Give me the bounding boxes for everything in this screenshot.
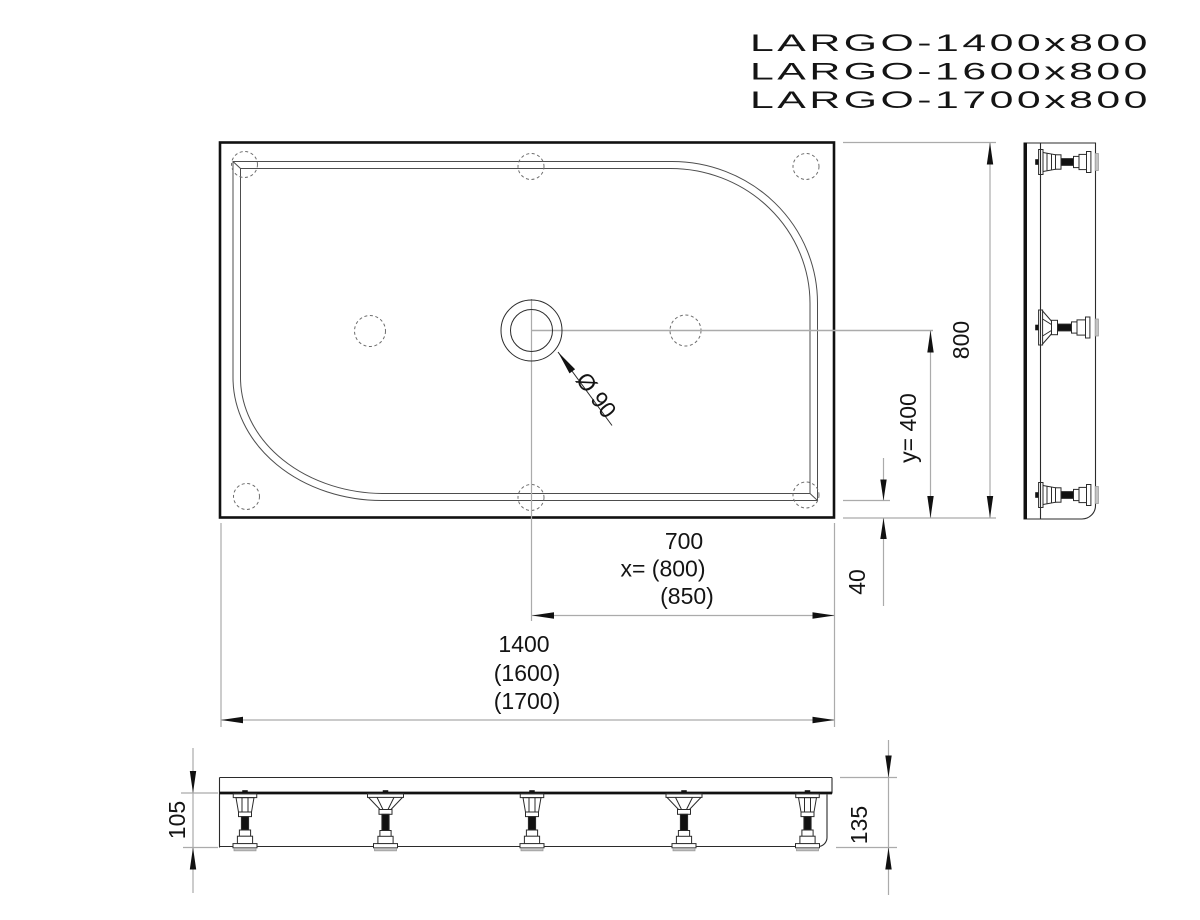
largo-shower-tray-drawing: LARGO-1400x800 LARGO-1600x800 LARGO-1700… [0,0,1200,920]
background [0,0,1200,920]
dim-135-label: 135 [846,806,872,844]
dim-850-label: (850) [660,583,714,609]
dim-1700-label: (1700) [494,688,560,714]
model-name-2: LARGO-1600x800 [750,59,1151,86]
dim-700-label: 700 [665,528,703,554]
dim-y400-label: y= 400 [895,393,921,463]
dim-40-label: 40 [844,569,870,595]
technical-drawing-page: LARGO-1400x800 LARGO-1600x800 LARGO-1700… [0,0,1200,920]
dim-1600-label: (1600) [494,660,560,686]
model-name-3: LARGO-1700x800 [750,87,1151,114]
model-name-1: LARGO-1400x800 [750,30,1151,57]
dim-800-label: 800 [948,321,974,359]
dim-x800-label: x= (800) [620,556,705,582]
title-block: LARGO-1400x800 LARGO-1600x800 LARGO-1700… [750,30,1151,114]
dim-105-label: 105 [164,801,190,839]
dim-1400-label: 1400 [498,631,549,657]
